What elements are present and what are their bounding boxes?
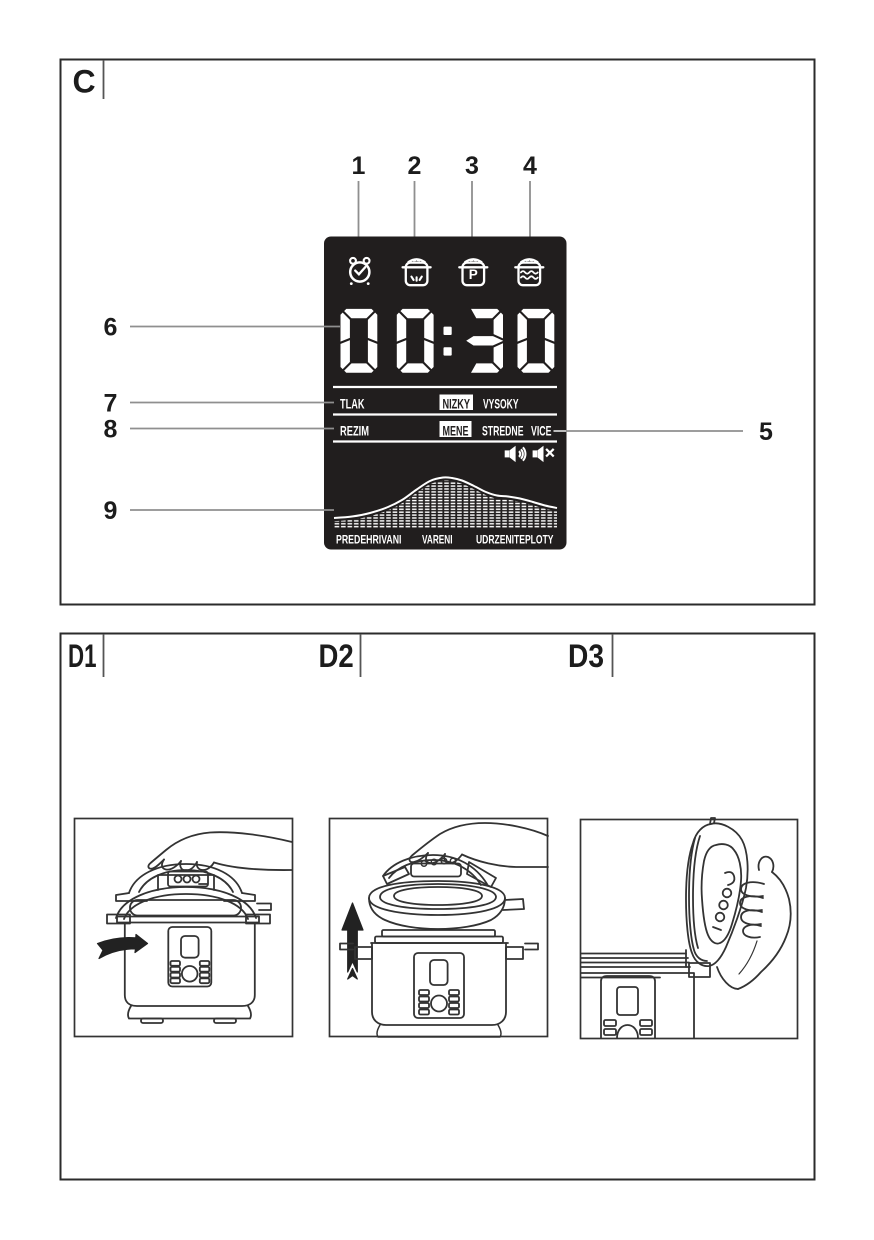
svg-text:REZIM: REZIM [340,423,369,439]
svg-text:TLAK: TLAK [340,396,365,412]
svg-text:P: P [469,267,478,282]
svg-text:MENE: MENE [443,423,469,439]
svg-text:D3: D3 [568,638,604,674]
svg-text:9: 9 [104,497,118,525]
svg-text:D1: D1 [68,638,97,674]
svg-text:D2: D2 [319,638,354,674]
svg-text:5: 5 [759,418,773,446]
svg-text:VARENI: VARENI [422,535,453,547]
svg-text:VICE: VICE [531,423,552,439]
svg-text:6: 6 [104,313,118,341]
svg-text:4: 4 [523,152,537,180]
svg-text:2: 2 [408,152,422,180]
svg-text:3: 3 [465,152,479,180]
svg-text:NIZKY: NIZKY [443,396,471,412]
svg-text:8: 8 [104,415,118,443]
svg-text:STREDNE: STREDNE [482,423,524,439]
svg-text:UDRZENITEPLOTY: UDRZENITEPLOTY [476,535,554,547]
svg-text:7: 7 [104,389,118,417]
svg-text:1: 1 [352,152,366,180]
svg-text:VYSOKY: VYSOKY [483,396,519,412]
svg-text:PREDEHRIVANI: PREDEHRIVANI [336,535,402,547]
svg-text:C: C [73,64,96,100]
